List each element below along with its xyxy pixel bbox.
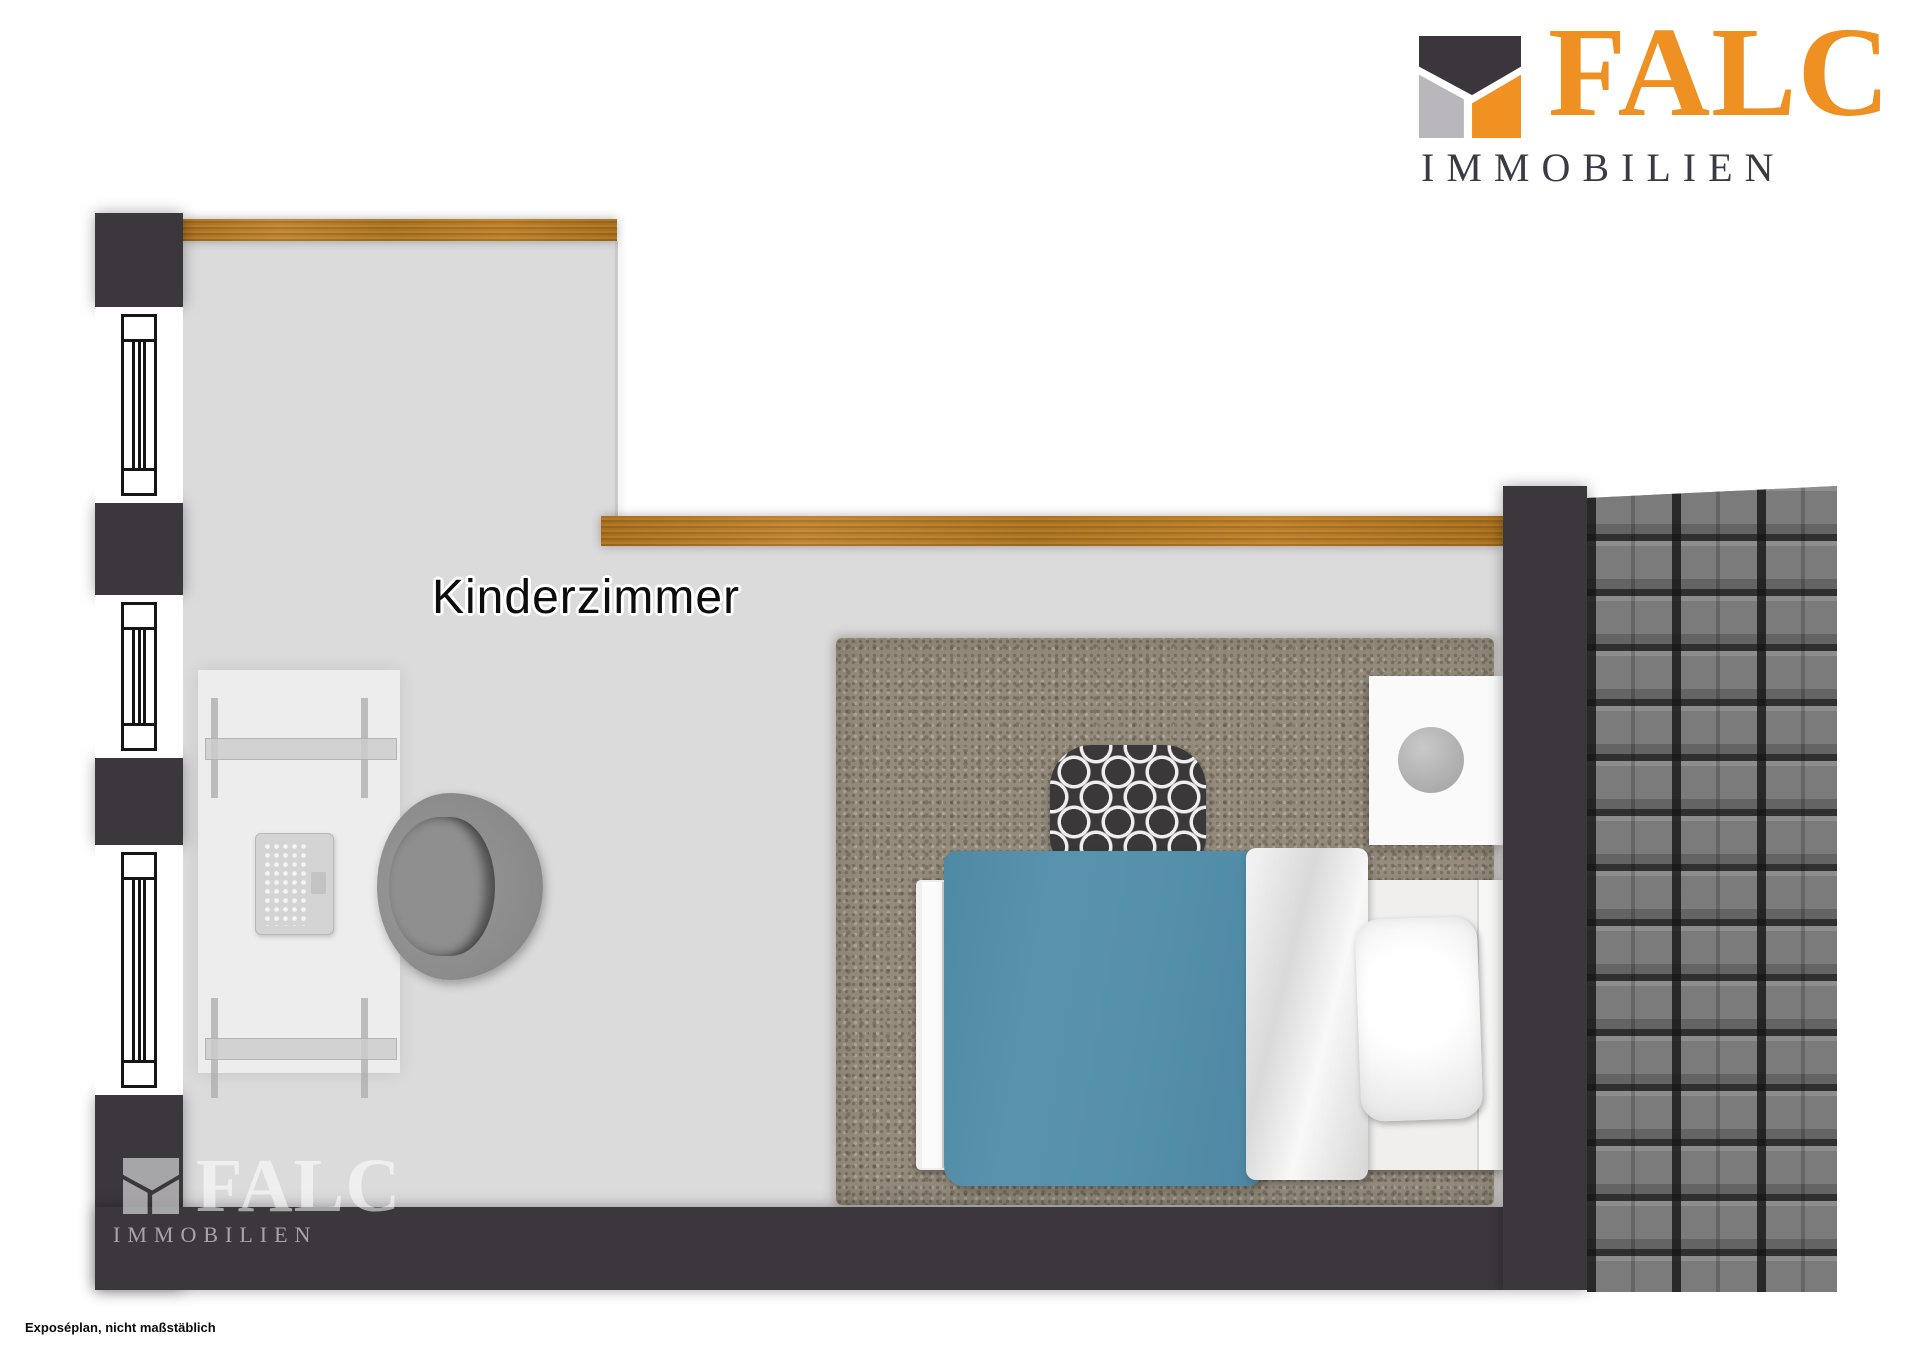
floor-notch-edge <box>615 241 618 517</box>
desk-keyboard <box>255 833 334 935</box>
bed-blanket-blue <box>944 851 1262 1186</box>
room-label: Kinderzimmer <box>432 570 740 625</box>
floorplan-canvas: Kinderzimmer FALC IMMOBILIEN FALC IMMOBI… <box>0 0 1920 1358</box>
desk-chair-seat <box>389 817 495 955</box>
keyboard-trackpad <box>311 872 326 894</box>
watermark-subtitle: IMMOBILIEN <box>113 1222 317 1248</box>
brand-subtitle: IMMOBILIEN <box>1421 144 1901 191</box>
falc-logo-mark-icon <box>1419 36 1521 138</box>
bed-footboard <box>922 882 944 1168</box>
brand-name: FALC <box>1548 8 1893 138</box>
bed-headboard <box>1477 880 1503 1170</box>
wall-segment <box>95 758 183 845</box>
desk-trestle <box>205 1038 397 1060</box>
lamp-icon <box>1398 727 1464 793</box>
window-icon <box>95 845 183 1095</box>
window-icon <box>95 307 183 503</box>
honeycomb-chair <box>1050 745 1206 868</box>
wood-beam-top-left <box>183 219 617 241</box>
keyboard-keys <box>263 842 309 926</box>
falc-logo-mark-watermark-icon <box>123 1158 179 1214</box>
watermark-brand: FALC <box>196 1148 401 1224</box>
wall-segment <box>95 213 183 307</box>
wood-beam-top-right <box>601 516 1503 546</box>
nightstand <box>1369 676 1503 845</box>
roof-tiles <box>1587 486 1837 1292</box>
plan-disclaimer: Exposéplan, nicht maßstäblich <box>25 1320 216 1335</box>
wall-segment-right <box>1503 486 1587 1290</box>
bed-pillow <box>1355 916 1484 1122</box>
bed-blanket-white <box>1246 848 1368 1180</box>
window-icon <box>95 595 183 758</box>
desk-trestle <box>205 738 397 760</box>
wall-segment <box>95 503 183 595</box>
